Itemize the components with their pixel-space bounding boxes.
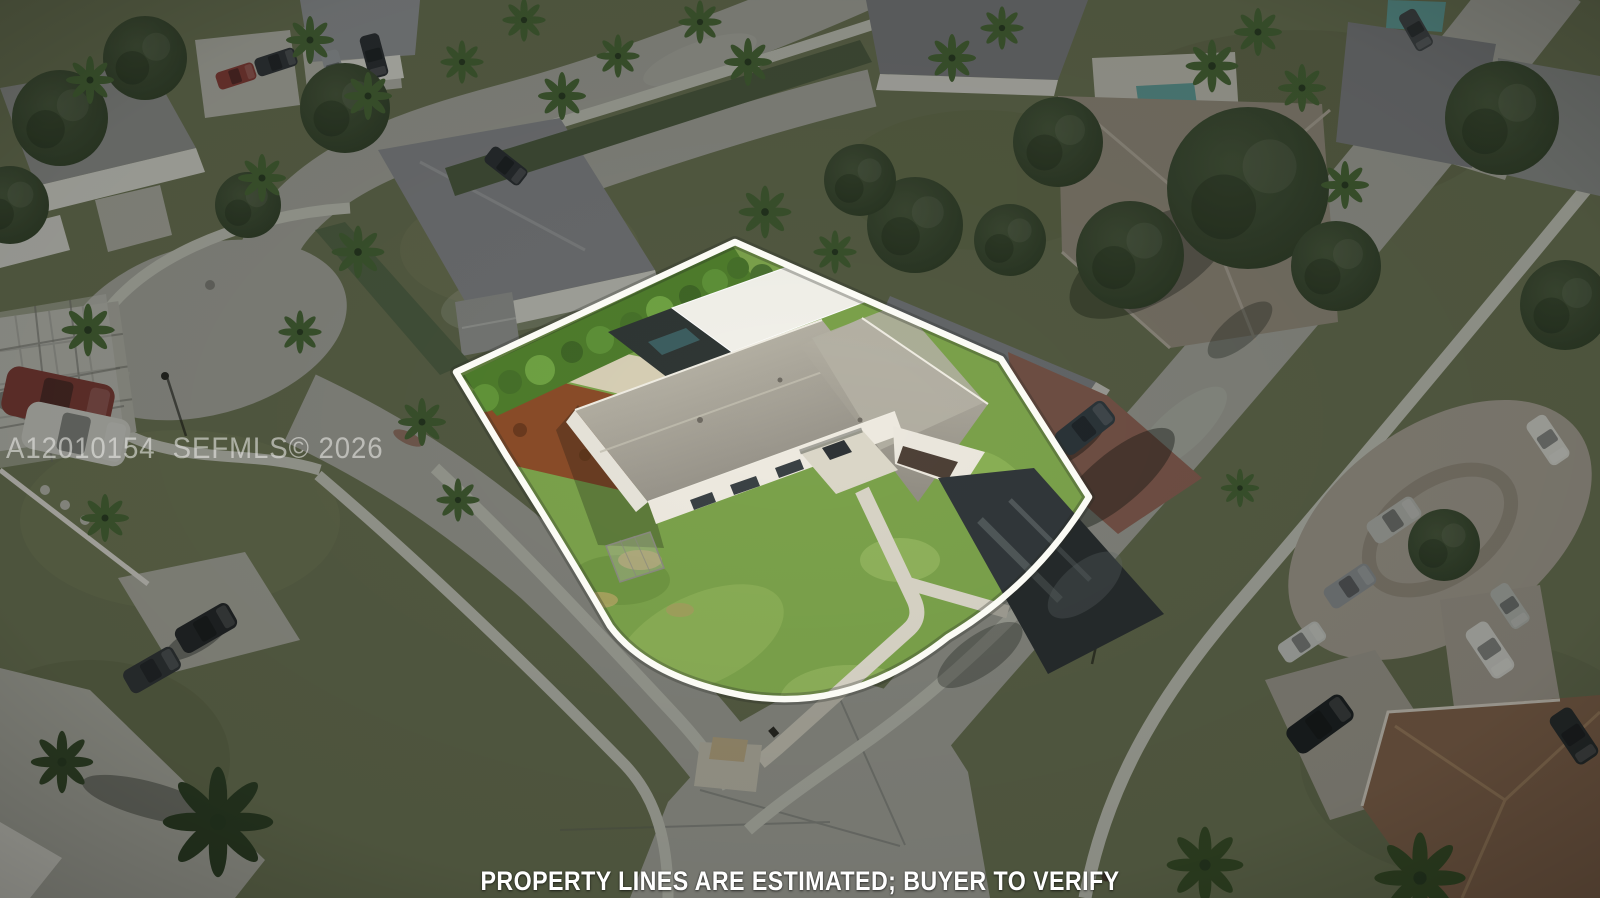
aerial-photo: A12010154 SEFMLS© 2026 PROPERTY LINES AR… (0, 0, 1600, 898)
disclaimer-banner: PROPERTY LINES ARE ESTIMATED; BUYER TO V… (112, 866, 1488, 897)
mls-watermark: A12010154 SEFMLS© 2026 (6, 432, 384, 466)
